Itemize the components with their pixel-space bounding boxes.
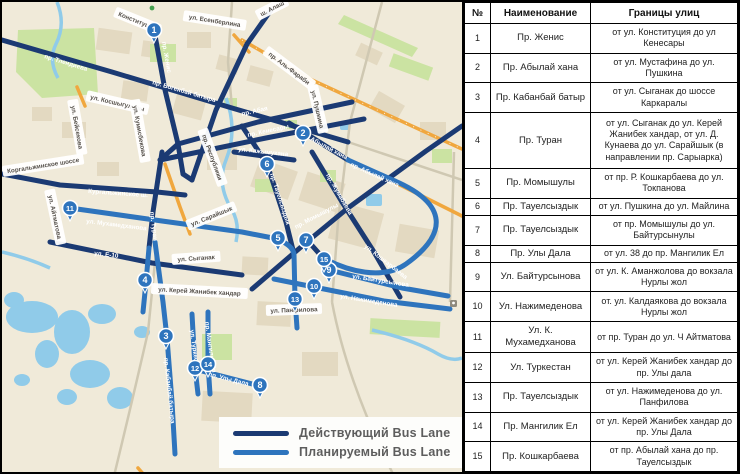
table-cell-bounds: от пр. Абылай хана до пр. Тауелсыздык	[591, 442, 738, 472]
table-cell-num: 11	[465, 322, 491, 353]
lake	[70, 360, 110, 388]
table-cell-bounds: от ул. Мустафина до ул. Пушкина	[591, 53, 738, 83]
table-cell-bounds: от ул. Нажимеденова до ул. Панфилова	[591, 382, 738, 412]
marker-number: 12	[191, 364, 199, 373]
lake	[107, 387, 133, 409]
marker-number: 5	[275, 233, 280, 243]
marker-number: 3	[163, 331, 168, 341]
lake	[35, 340, 59, 368]
table-cell-name: Ул. Байтурсынова	[491, 262, 591, 292]
bus-lane-street-table: №НаименованиеГраницы улиц 1Пр. Женисот у…	[464, 2, 738, 472]
table-cell-name: Пр. Кабанбай батыр	[491, 83, 591, 113]
lake	[88, 304, 116, 324]
table-cell-num: 1	[465, 24, 491, 54]
table-cell-num: 13	[465, 382, 491, 412]
table-header-2: Границы улиц	[591, 3, 738, 24]
bus-lane-map-panel: пр. Тлендиевапр. Жениспр. Богенбай батыр…	[2, 2, 464, 472]
table-row: 2Пр. Абылай ханаот ул. Мустафина до ул. …	[465, 53, 738, 83]
building-block	[242, 256, 269, 275]
map-legend: Действующий Bus Lane Планируемый Bus Lan…	[219, 417, 462, 468]
marker-number: 8	[257, 380, 262, 390]
table-cell-name: Ул. К. Мухамедханова	[491, 322, 591, 353]
table-cell-bounds: от пр. Р. Кошкарбаева до ул. Токпанова	[591, 168, 738, 198]
table-cell-bounds: от ул. 38 до пр. Мангилик Ел	[591, 245, 738, 262]
table-cell-bounds: от пр. Момышулы до ул. Байтурсынулы	[591, 215, 738, 245]
poi-icon	[150, 6, 155, 11]
table-row: 10Ул. Нажимеденоваот. ул. Калдаякова до …	[465, 292, 738, 322]
table-row: 3Пр. Кабанбай батырот ул. Сыганак до шос…	[465, 83, 738, 113]
legend-planned-label: Планируемый Bus Lane	[299, 445, 451, 459]
table-cell-num: 5	[465, 168, 491, 198]
table-cell-name: Пр. Тауелсыздык	[491, 198, 591, 215]
table-cell-name: Пр. Улы Дала	[491, 245, 591, 262]
table-row: 14Пр. Мангилик Елот ул. Керей Жанибек ха…	[465, 412, 738, 442]
legend-planned-line-swatch	[233, 450, 289, 455]
legend-planned-row: Планируемый Bus Lane	[233, 445, 462, 459]
lake	[57, 389, 77, 405]
lake	[14, 374, 30, 386]
table-cell-num: 2	[465, 53, 491, 83]
table-row: 12Ул. Туркестанот ул. Керей Жанибек ханд…	[465, 353, 738, 383]
table-cell-num: 9	[465, 262, 491, 292]
table-row: 6Пр. Тауелсыздыкот ул. Пушкина до ул. Ма…	[465, 198, 738, 215]
legend-existing-line-swatch	[233, 431, 289, 436]
park-area	[432, 149, 452, 163]
table-cell-bounds: от ул. Конституция до ул Кенесары	[591, 24, 738, 54]
table-row: 5Пр. Момышулыот пр. Р. Кошкарбаева до ул…	[465, 168, 738, 198]
table-cell-num: 8	[465, 245, 491, 262]
table-cell-num: 14	[465, 412, 491, 442]
table-cell-bounds: от ул. Сыганак до шоссе Каркаралы	[591, 83, 738, 113]
table-row: 4Пр. Туранот ул. Сыганак до ул. Керей Жа…	[465, 113, 738, 169]
marker-number: 11	[66, 204, 74, 213]
page-frame: пр. Тлендиевапр. Жениспр. Богенбай батыр…	[0, 0, 740, 474]
table-cell-bounds: от ул. Пушкина до ул. Майлина	[591, 198, 738, 215]
table-cell-bounds: от ул. Керей Жанибек хандар до пр. Улы д…	[591, 353, 738, 383]
bus-lane-map: пр. Тлендиевапр. Жениспр. Богенбай батыр…	[2, 2, 462, 472]
marker-number: 2	[300, 128, 305, 138]
table-cell-name: Пр. Момышулы	[491, 168, 591, 198]
marker-number: 15	[320, 255, 328, 264]
legend-existing-label: Действующий Bus Lane	[299, 426, 450, 440]
table-row: 8Пр. Улы Далаот ул. 38 до пр. Мангилик Е…	[465, 245, 738, 262]
table-cell-num: 3	[465, 83, 491, 113]
table-cell-bounds: от. ул. Калдаякова до вокзала Нурлы жол	[591, 292, 738, 322]
marker-number: 10	[310, 282, 318, 291]
table-row: 15Пр. Кошкарбаеваот пр. Абылай хана до п…	[465, 442, 738, 472]
table-cell-name: Пр. Тауелсыздык	[491, 382, 591, 412]
marker-number: 7	[303, 235, 308, 245]
table-cell-name: Пр. Абылай хана	[491, 53, 591, 83]
table-row: 1Пр. Женисот ул. Конституция до ул Кенес…	[465, 24, 738, 54]
table-row: 11Ул. К. Мухамедхановаот пр. Туран до ул…	[465, 322, 738, 353]
legend-existing-row: Действующий Bus Lane	[233, 426, 462, 440]
table-cell-num: 7	[465, 215, 491, 245]
table-cell-name: Пр. Туран	[491, 113, 591, 169]
table-cell-name: Пр. Тауелсыздык	[491, 215, 591, 245]
table-cell-num: 12	[465, 353, 491, 383]
table-cell-name: Ул. Нажимеденова	[491, 292, 591, 322]
marker-number: 6	[264, 159, 269, 169]
table-row: 7Пр. Тауелсыздыкот пр. Момышулы до ул. Б…	[465, 215, 738, 245]
table-row: 9Ул. Байтурсыноваот ул. К. Аманжолова до…	[465, 262, 738, 292]
table-cell-num: 6	[465, 198, 491, 215]
marker-number: 14	[204, 360, 213, 369]
building-block	[32, 107, 52, 121]
table-cell-num: 15	[465, 442, 491, 472]
marker-number: 4	[142, 275, 147, 285]
building-block	[187, 32, 211, 48]
table-cell-num: 4	[465, 113, 491, 169]
table-row: 13Пр. Тауелсыздыкот ул. Нажимеденова до …	[465, 382, 738, 412]
table-cell-name: Пр. Кошкарбаева	[491, 442, 591, 472]
table-header-1: Наименование	[491, 3, 591, 24]
table-cell-bounds: от пр. Туран до ул. Ч Айтматова	[591, 322, 738, 353]
table-cell-bounds: от ул. Керей Жанибек хандар до пр. Улы Д…	[591, 412, 738, 442]
table-cell-name: Ул. Туркестан	[491, 353, 591, 383]
table-header-row: №НаименованиеГраницы улиц	[465, 3, 738, 24]
table-cell-num: 10	[465, 292, 491, 322]
lake	[54, 310, 90, 354]
railway-station-icon	[450, 300, 457, 307]
building-block	[302, 352, 338, 376]
building-block	[96, 28, 133, 55]
table-cell-bounds: от ул. Сыганак до ул. Керей Жанибек ханд…	[591, 113, 738, 169]
marker-number: 13	[291, 295, 299, 304]
table-header-0: №	[465, 3, 491, 24]
building-block	[97, 162, 119, 176]
lake	[4, 292, 24, 308]
table-cell-bounds: от ул. К. Аманжолова до вокзала Нурлы жо…	[591, 262, 738, 292]
street-table-panel: №НаименованиеГраницы улиц 1Пр. Женисот у…	[464, 2, 738, 472]
marker-number: 1	[151, 25, 156, 35]
table-cell-name: Пр. Женис	[491, 24, 591, 54]
table-cell-name: Пр. Мангилик Ел	[491, 412, 591, 442]
